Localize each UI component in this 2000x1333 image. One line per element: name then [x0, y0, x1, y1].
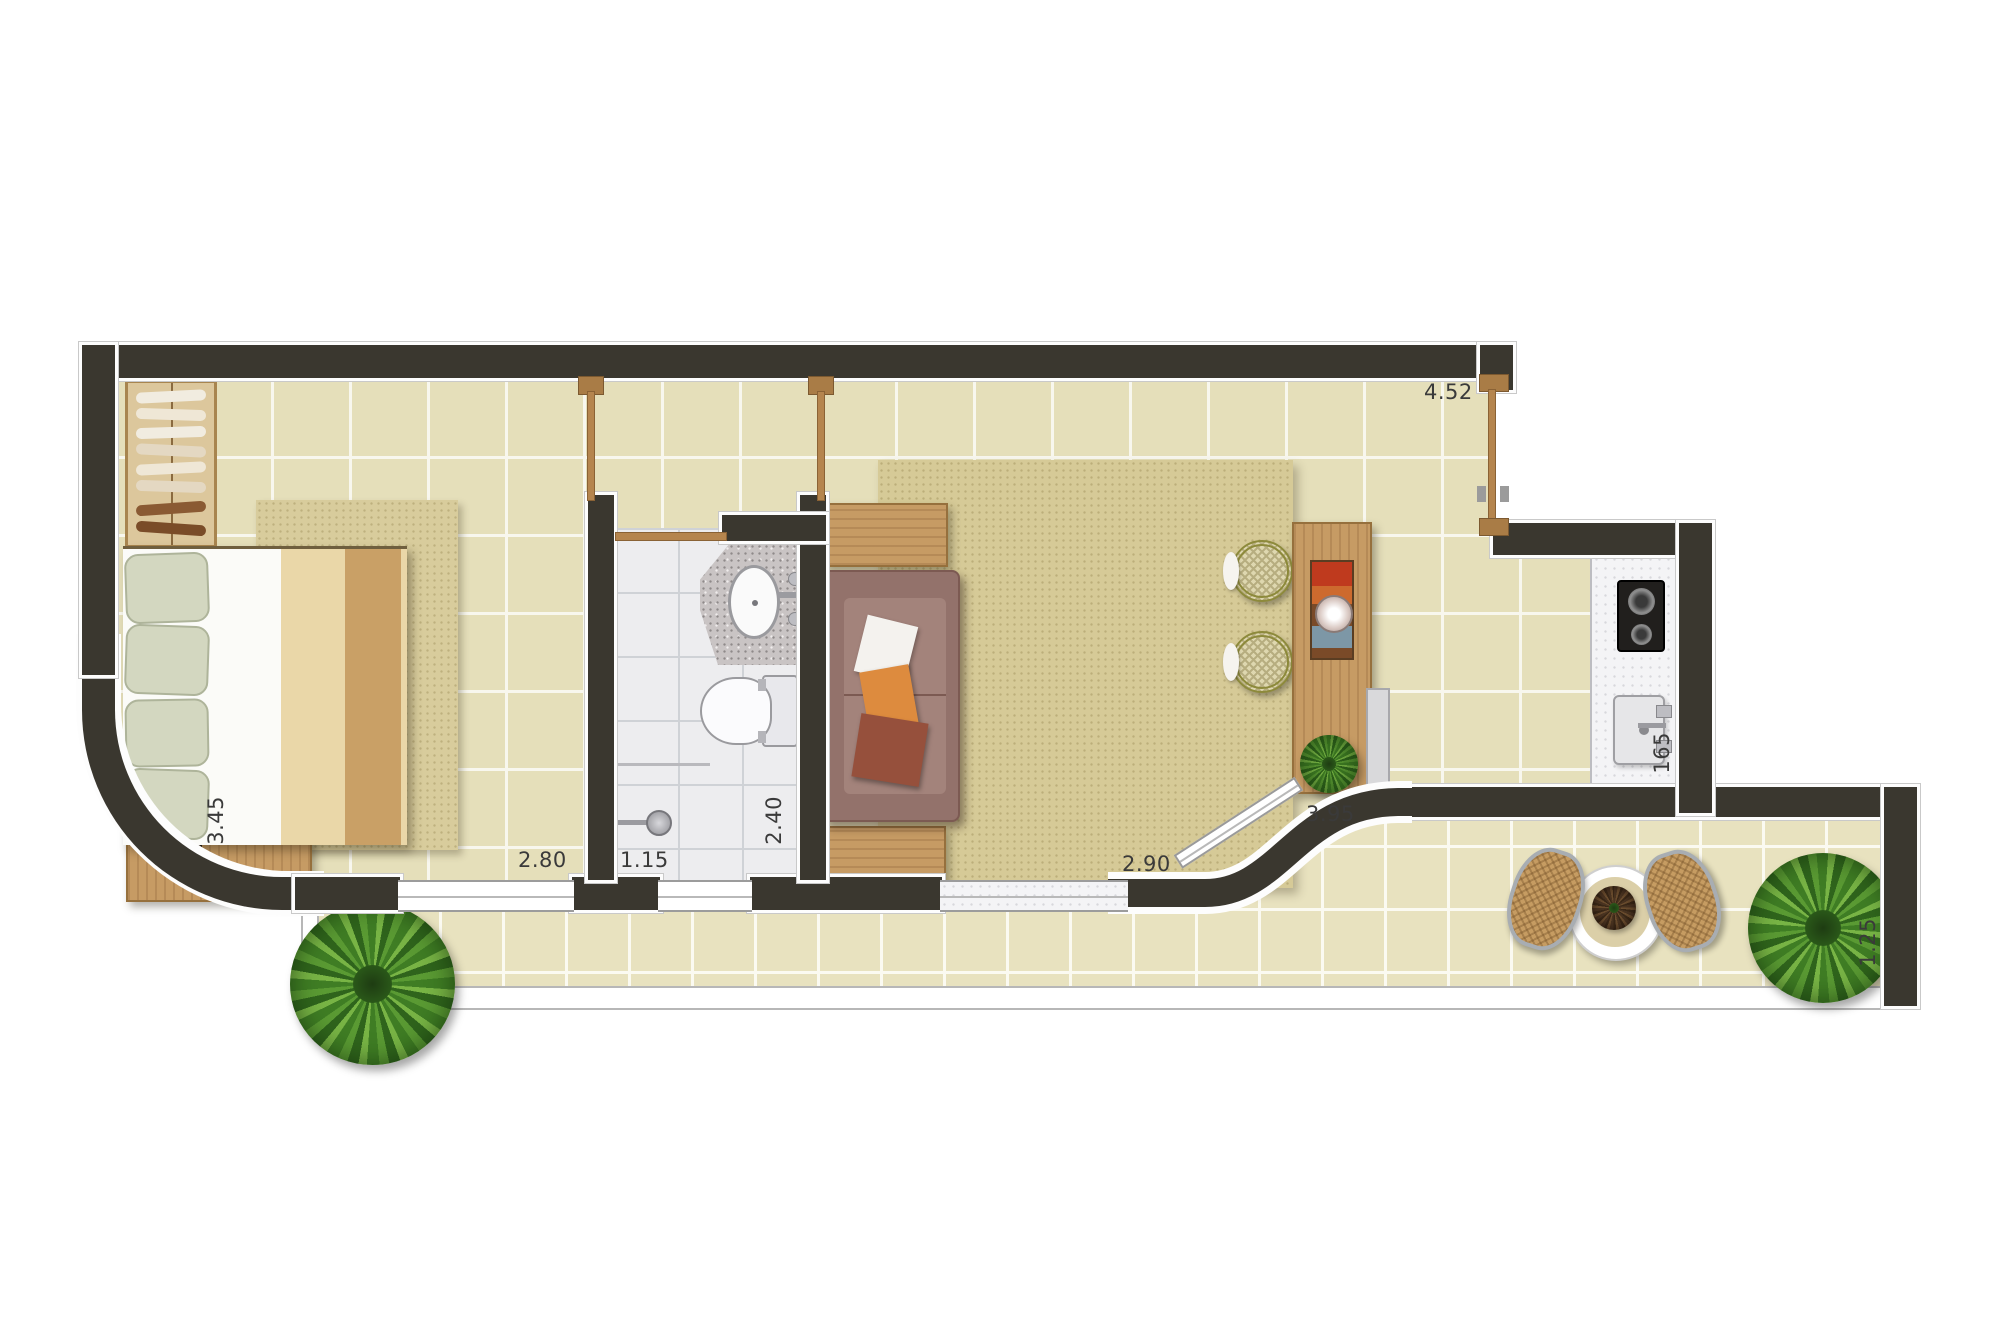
hanger-icon	[136, 480, 206, 493]
shower-head-icon	[646, 810, 672, 836]
dim-label: 2.90	[1122, 852, 1171, 876]
door-handle-icon	[1500, 486, 1509, 502]
glass-door-leaf	[1489, 390, 1495, 518]
dim-label: 3.45	[204, 796, 228, 845]
tray-band	[1312, 562, 1352, 586]
wall-corner-curved	[82, 640, 318, 910]
rattan-stool	[1231, 540, 1293, 602]
wall-kitchen-right	[1679, 523, 1712, 813]
toilet-hinge	[758, 679, 766, 691]
wall-bedroom-east	[588, 495, 614, 880]
wall-back-terrace	[1393, 787, 1917, 817]
hanger-icon	[136, 426, 206, 439]
bed-runner	[345, 549, 401, 845]
dim-label: 2.80	[518, 848, 567, 872]
burner-icon	[1631, 624, 1652, 645]
wall-terrace-right	[1884, 787, 1917, 1006]
wardrobe	[125, 380, 217, 548]
wall-bottom-a	[295, 877, 400, 910]
terrace-plant-left	[290, 903, 455, 1065]
dim-label: 165	[1650, 732, 1674, 774]
sink-faucet	[778, 592, 798, 598]
door-handle-icon	[1477, 486, 1486, 502]
hanger-icon	[136, 408, 206, 421]
dim-label: 3.95	[1306, 802, 1355, 826]
wall-top	[82, 345, 1493, 378]
wall-bottom-c	[750, 877, 942, 910]
wall-bottom-b	[572, 877, 660, 910]
rattan-stool	[1231, 631, 1293, 693]
dim-label: 2.40	[762, 796, 786, 845]
hall-door-leaf	[818, 392, 824, 500]
door-frame	[1479, 518, 1509, 536]
wall-bathroom-east	[800, 495, 826, 880]
bathroom-sink	[728, 565, 780, 639]
sofa	[820, 570, 960, 822]
dim-label: 1.25	[1856, 918, 1880, 967]
terrace-railing-bottom	[303, 986, 1886, 1010]
hanger-icon	[136, 389, 206, 404]
kitchen-faucet	[1638, 723, 1666, 728]
living-window-sill	[940, 880, 1128, 912]
hanger-icon	[136, 521, 207, 537]
bedroom-window	[398, 880, 574, 912]
bedroom-door-leaf	[588, 392, 594, 500]
wall-bathroom-top	[722, 515, 826, 541]
bed-pillow	[124, 552, 210, 625]
bathroom-window	[658, 880, 752, 912]
hanger-icon	[136, 461, 206, 476]
counter-bowl	[1315, 595, 1353, 633]
hanger-icon	[136, 443, 206, 458]
wall-left	[82, 345, 115, 675]
side-table-top	[822, 503, 948, 567]
toilet-hinge	[758, 731, 766, 743]
towel-bar	[618, 763, 710, 766]
table-centerpiece	[1592, 886, 1636, 930]
floor-plan: 4.52 3.45 2.80 1.15 2.40 2.90 3.95 165 1…	[0, 0, 2000, 1333]
toilet	[700, 673, 800, 749]
dim-label: 1.15	[620, 848, 669, 872]
kitchen-tap-knob	[1656, 705, 1672, 718]
sofa-throw	[851, 713, 928, 787]
bathroom-door-leaf	[616, 533, 726, 540]
cooktop	[1617, 580, 1665, 652]
sink-drain	[752, 600, 758, 606]
dim-label: 4.52	[1424, 380, 1473, 404]
burner-icon	[1628, 588, 1655, 615]
